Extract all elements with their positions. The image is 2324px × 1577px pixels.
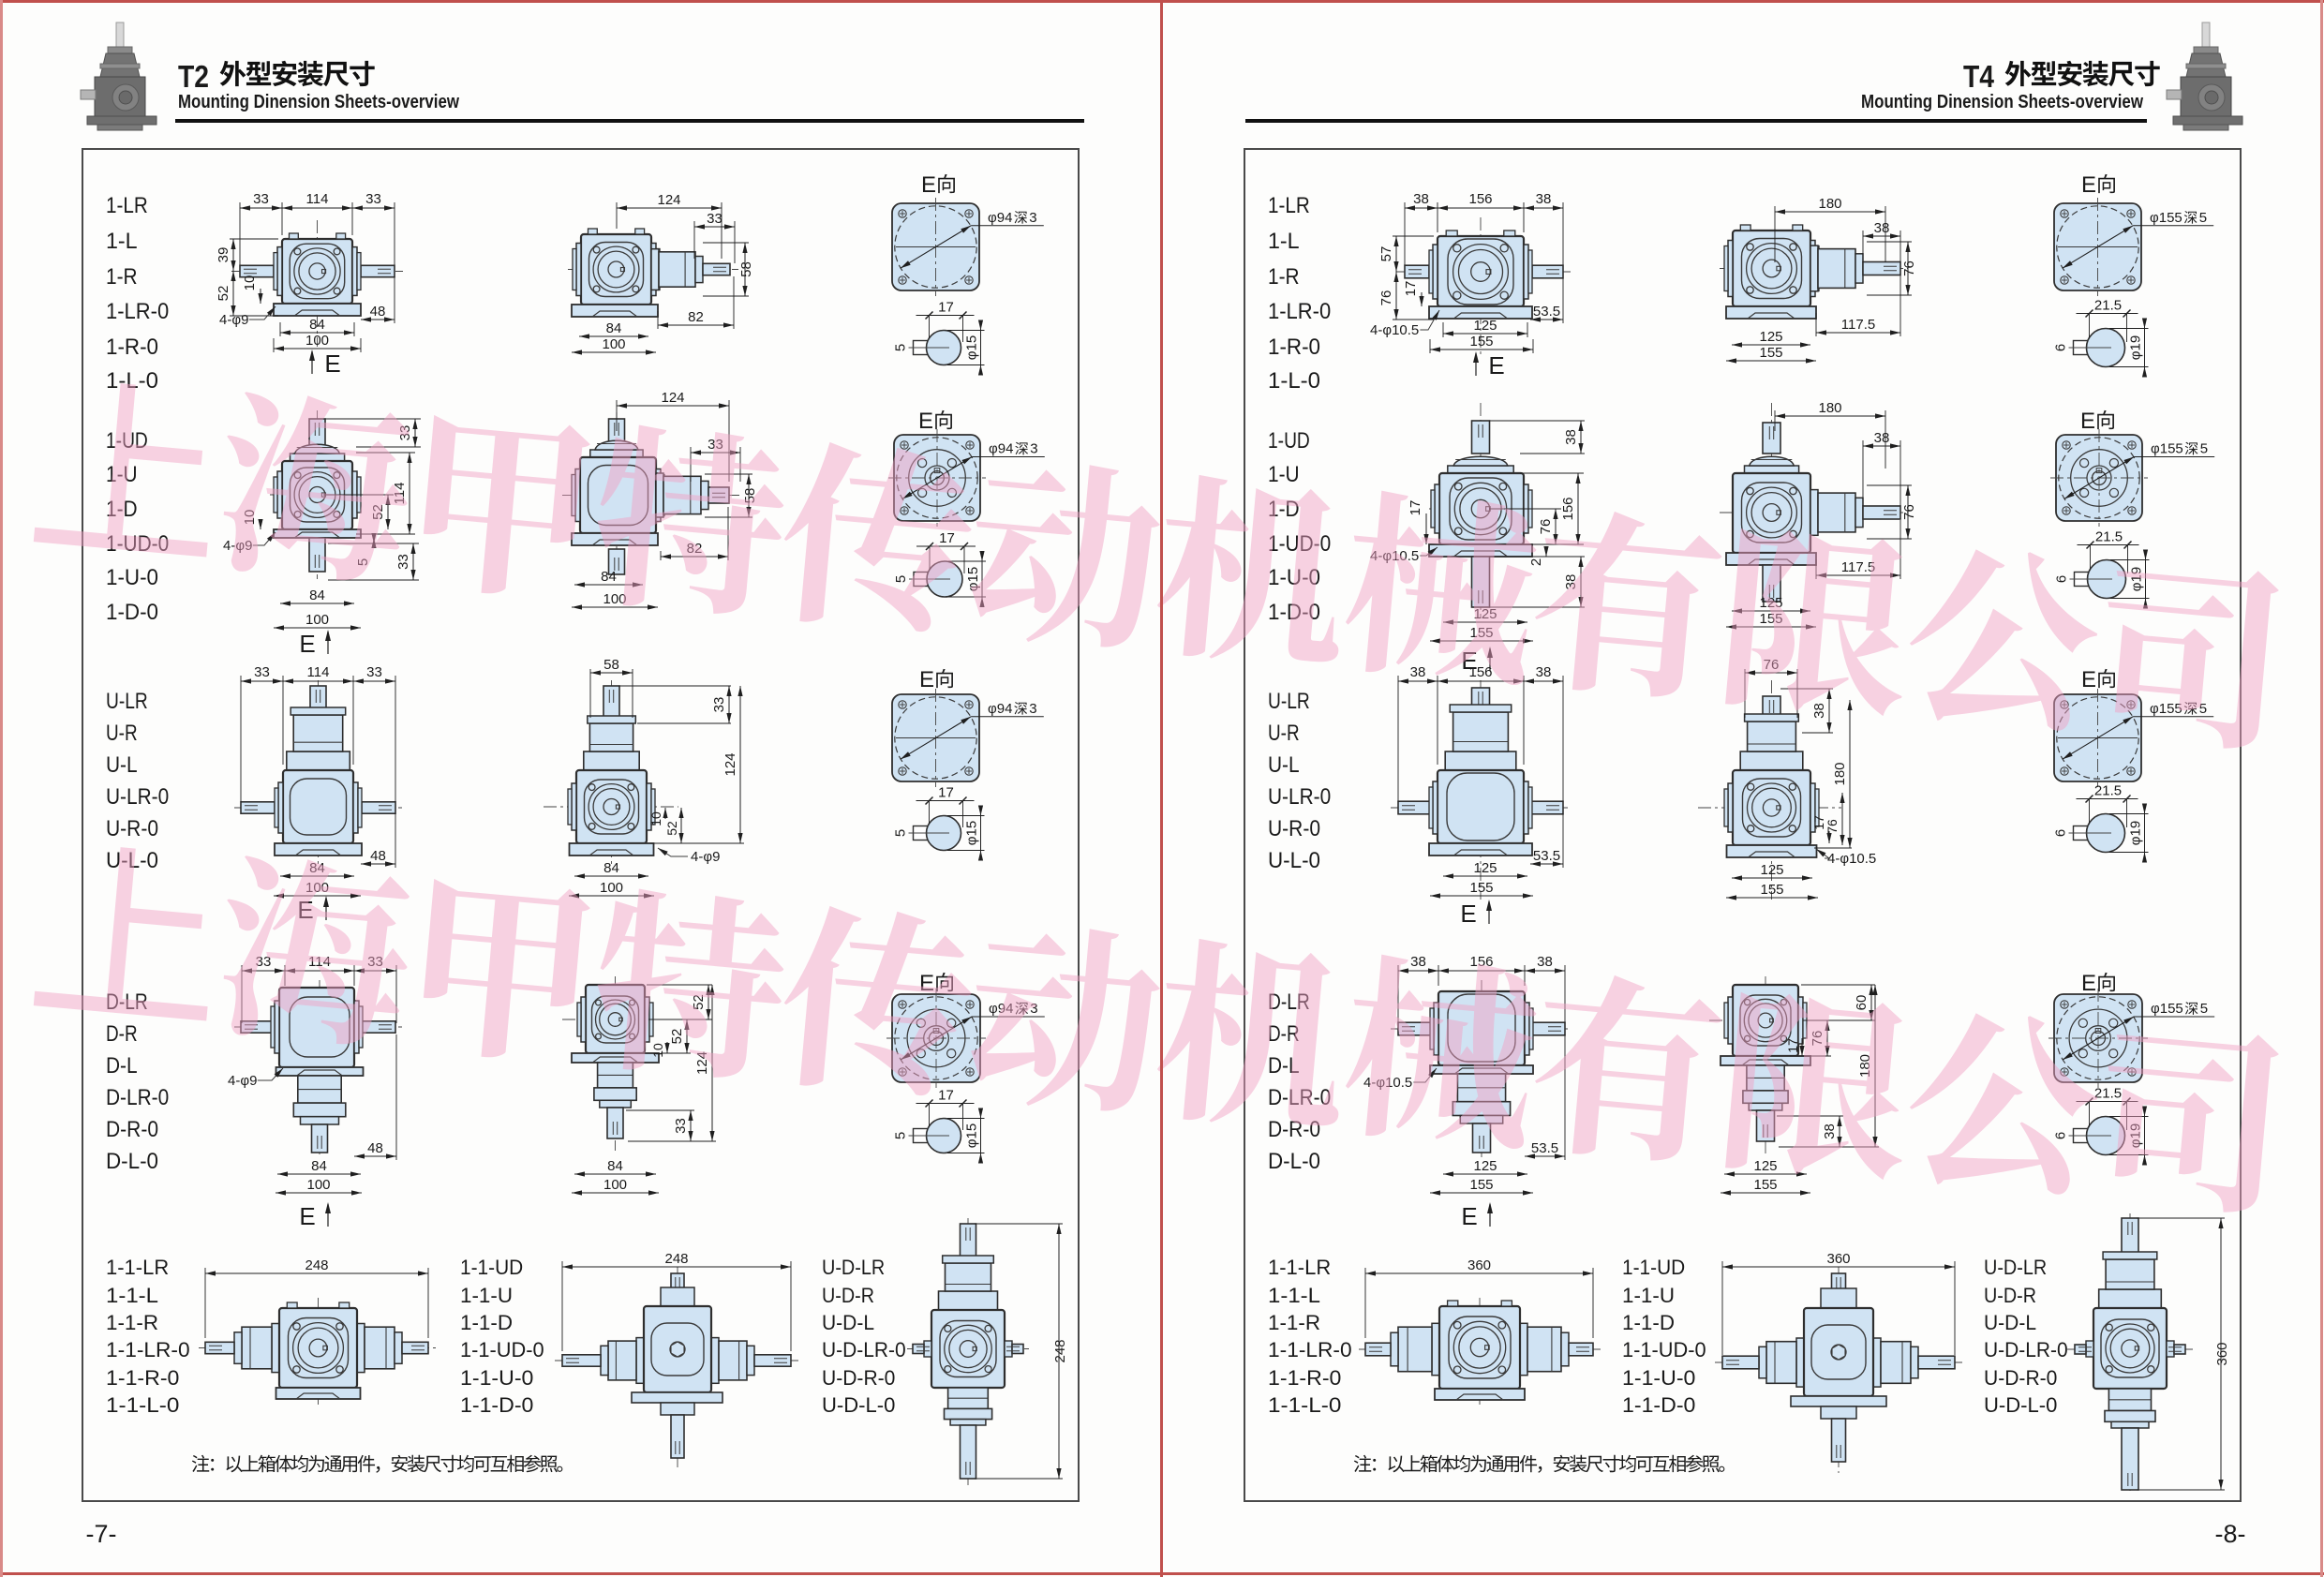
svg-text:E: E xyxy=(324,350,340,378)
svg-text:48: 48 xyxy=(367,1140,383,1156)
svg-text:100: 100 xyxy=(306,1177,330,1193)
svg-text:3: 3 xyxy=(1030,441,1037,457)
svg-text:4-φ9: 4-φ9 xyxy=(691,849,720,865)
svg-text:17: 17 xyxy=(938,300,954,316)
svg-text:248: 248 xyxy=(1052,1339,1068,1362)
svg-text:5: 5 xyxy=(2199,210,2207,226)
svg-text:1-1-D: 1-1-D xyxy=(460,1311,513,1334)
svg-text:-7-: -7- xyxy=(86,1520,117,1548)
svg-text:33: 33 xyxy=(707,211,723,227)
svg-text:38: 38 xyxy=(1537,954,1553,970)
svg-text:E: E xyxy=(2081,971,2096,996)
svg-text:D-L-0: D-L-0 xyxy=(1268,1149,1320,1174)
svg-text:33: 33 xyxy=(673,1118,689,1134)
svg-text:125: 125 xyxy=(1473,860,1497,876)
svg-text:156: 156 xyxy=(1468,664,1492,680)
svg-text:E: E xyxy=(918,409,933,434)
svg-text:82: 82 xyxy=(688,309,704,325)
svg-text:φ155: φ155 xyxy=(2151,441,2183,457)
svg-text:E: E xyxy=(1461,1202,1477,1230)
svg-text:21.5: 21.5 xyxy=(2094,298,2122,314)
svg-text:84: 84 xyxy=(601,569,617,585)
svg-text:52: 52 xyxy=(669,1029,685,1045)
svg-text:124: 124 xyxy=(661,390,684,406)
svg-text:φ15: φ15 xyxy=(964,821,980,845)
svg-text:155: 155 xyxy=(1469,1177,1493,1193)
svg-text:D-L: D-L xyxy=(106,1053,138,1079)
svg-text:17: 17 xyxy=(1403,281,1419,297)
svg-text:U-D-LR: U-D-LR xyxy=(1984,1256,2047,1279)
svg-text:1-L: 1-L xyxy=(1268,229,1300,254)
svg-text:360: 360 xyxy=(2214,1342,2230,1365)
svg-text:U-L-0: U-L-0 xyxy=(1268,848,1320,873)
svg-text:114: 114 xyxy=(306,191,329,207)
svg-text:5: 5 xyxy=(2200,1001,2208,1017)
svg-text:76: 76 xyxy=(1538,519,1554,535)
svg-text:58: 58 xyxy=(603,657,619,673)
svg-text:33: 33 xyxy=(253,191,269,207)
svg-text:38: 38 xyxy=(1410,664,1426,680)
svg-text:U-LR-0: U-LR-0 xyxy=(1268,784,1331,810)
svg-text:E: E xyxy=(299,1202,315,1230)
svg-text:1-R: 1-R xyxy=(106,264,138,290)
svg-text:φ155: φ155 xyxy=(2150,701,2182,717)
svg-text:248: 248 xyxy=(305,1257,328,1273)
svg-text:52: 52 xyxy=(216,286,231,302)
svg-text:5: 5 xyxy=(893,344,909,351)
svg-text:155: 155 xyxy=(1753,1177,1777,1193)
svg-text:1-L: 1-L xyxy=(106,229,138,254)
svg-text:17: 17 xyxy=(938,785,954,801)
svg-text:U-D-R: U-D-R xyxy=(1984,1284,2036,1307)
svg-text:1-1-D-0: 1-1-D-0 xyxy=(1622,1393,1695,1417)
svg-text:1-1-L: 1-1-L xyxy=(1268,1284,1320,1307)
svg-text:1-1-UD: 1-1-UD xyxy=(1622,1256,1685,1279)
svg-text:E: E xyxy=(921,172,936,198)
svg-text:156: 156 xyxy=(1560,497,1576,520)
svg-text:180: 180 xyxy=(1818,400,1841,416)
svg-text:4-φ10.5: 4-φ10.5 xyxy=(1370,322,1419,338)
svg-text:1-1-L-0: 1-1-L-0 xyxy=(106,1393,179,1417)
svg-text:U-D-R-0: U-D-R-0 xyxy=(1984,1366,2057,1390)
svg-text:155: 155 xyxy=(1759,345,1782,361)
svg-text:125: 125 xyxy=(1759,329,1782,345)
svg-text:10: 10 xyxy=(242,275,258,291)
svg-text:1-U: 1-U xyxy=(1268,462,1300,487)
svg-text:1-1-U-0: 1-1-U-0 xyxy=(460,1366,533,1390)
svg-text:1-1-R: 1-1-R xyxy=(106,1311,158,1334)
svg-text:1-U-0: 1-U-0 xyxy=(106,565,158,590)
svg-text:53.5: 53.5 xyxy=(1533,304,1560,320)
svg-text:1-LR: 1-LR xyxy=(1268,193,1310,218)
svg-text:60: 60 xyxy=(1854,995,1870,1011)
svg-text:1-1-U: 1-1-U xyxy=(460,1284,513,1307)
svg-text:17: 17 xyxy=(939,530,955,546)
svg-text:5: 5 xyxy=(2200,441,2208,457)
svg-text:U-D-R: U-D-R xyxy=(822,1284,874,1307)
svg-text:D-R-0: D-R-0 xyxy=(106,1117,158,1142)
svg-text:E: E xyxy=(1488,351,1504,379)
svg-text:48: 48 xyxy=(370,848,386,864)
svg-text:1-1-R: 1-1-R xyxy=(1268,1311,1320,1334)
svg-text:φ19: φ19 xyxy=(2128,335,2144,360)
svg-text:180: 180 xyxy=(1832,762,1848,785)
svg-text:155: 155 xyxy=(1469,880,1493,896)
svg-text:U-D-LR: U-D-LR xyxy=(822,1256,885,1279)
svg-text:1-1-L-0: 1-1-L-0 xyxy=(1268,1393,1341,1417)
svg-text:21.5: 21.5 xyxy=(2095,529,2123,545)
svg-text:5: 5 xyxy=(893,575,909,583)
svg-text:1-1-LR: 1-1-LR xyxy=(1268,1256,1331,1279)
svg-text:117.5: 117.5 xyxy=(1841,317,1875,333)
svg-text:33: 33 xyxy=(366,664,382,680)
svg-text:U-D-L: U-D-L xyxy=(1984,1311,2036,1334)
svg-text:1-R: 1-R xyxy=(1268,264,1300,290)
svg-text:E: E xyxy=(2081,667,2096,692)
svg-text:248: 248 xyxy=(664,1251,688,1267)
svg-text:38: 38 xyxy=(1410,954,1426,970)
svg-text:D-R: D-R xyxy=(106,1021,138,1047)
svg-text:156: 156 xyxy=(1468,191,1492,207)
svg-text:58: 58 xyxy=(738,261,754,277)
svg-text:4-φ10.5: 4-φ10.5 xyxy=(1827,851,1876,867)
svg-text:38: 38 xyxy=(1874,220,1890,236)
svg-text:180: 180 xyxy=(1818,196,1841,212)
svg-text:-8-: -8- xyxy=(2215,1520,2246,1548)
svg-text:57: 57 xyxy=(1378,246,1394,262)
svg-text:21.5: 21.5 xyxy=(2094,783,2122,799)
svg-text:6: 6 xyxy=(2053,829,2069,837)
svg-text:10: 10 xyxy=(650,1043,665,1058)
svg-text:125: 125 xyxy=(1760,862,1783,878)
svg-text:100: 100 xyxy=(600,880,623,896)
svg-text:1-R-0: 1-R-0 xyxy=(1268,335,1320,360)
svg-text:E: E xyxy=(1460,900,1476,928)
svg-text:38: 38 xyxy=(1811,703,1827,719)
svg-text:125: 125 xyxy=(1473,318,1497,334)
svg-text:φ19: φ19 xyxy=(2129,567,2145,591)
svg-text:84: 84 xyxy=(607,1158,623,1174)
svg-text:1-1-D: 1-1-D xyxy=(1622,1311,1675,1334)
svg-text:1-1-U: 1-1-U xyxy=(1622,1284,1675,1307)
svg-text:100: 100 xyxy=(305,612,329,628)
svg-text:1-1-L: 1-1-L xyxy=(106,1284,158,1307)
svg-text:U-D-L-0: U-D-L-0 xyxy=(822,1393,895,1417)
svg-text:38: 38 xyxy=(1874,430,1890,446)
svg-text:52: 52 xyxy=(664,821,679,836)
svg-text:21.5: 21.5 xyxy=(2094,1086,2122,1102)
svg-text:76: 76 xyxy=(1378,290,1394,306)
svg-text:5: 5 xyxy=(893,1132,909,1139)
svg-text:U-D-LR-0: U-D-LR-0 xyxy=(822,1338,906,1361)
svg-text:1-L-0: 1-L-0 xyxy=(1268,368,1320,394)
svg-text:1-R-0: 1-R-0 xyxy=(106,335,158,360)
svg-text:Mounting Dinension Sheets-over: Mounting Dinension Sheets-overview xyxy=(178,92,459,112)
svg-text:φ94: φ94 xyxy=(988,701,1012,717)
svg-text:38: 38 xyxy=(1413,191,1429,207)
svg-text:1-1-U-0: 1-1-U-0 xyxy=(1622,1366,1695,1390)
svg-text:6: 6 xyxy=(2053,344,2069,351)
svg-text:φ155: φ155 xyxy=(2150,210,2182,226)
svg-text:1-1-UD: 1-1-UD xyxy=(460,1256,523,1279)
svg-text:E: E xyxy=(2080,409,2095,434)
svg-text:155: 155 xyxy=(1760,882,1783,898)
svg-text:76: 76 xyxy=(1901,260,1917,276)
svg-text:U-R: U-R xyxy=(1268,721,1300,746)
svg-text:φ94: φ94 xyxy=(989,441,1013,457)
svg-text:17: 17 xyxy=(1408,500,1423,516)
svg-text:2: 2 xyxy=(1528,558,1544,566)
svg-text:38: 38 xyxy=(1822,1123,1838,1139)
svg-text:53.5: 53.5 xyxy=(1533,848,1560,864)
svg-text:1-1-LR-0: 1-1-LR-0 xyxy=(1268,1338,1352,1361)
svg-text:33: 33 xyxy=(254,664,270,680)
svg-text:3: 3 xyxy=(1029,701,1036,717)
svg-text:33: 33 xyxy=(395,554,411,570)
svg-text:33: 33 xyxy=(365,191,381,207)
svg-text:1-1-R-0: 1-1-R-0 xyxy=(106,1366,179,1390)
svg-text:39: 39 xyxy=(216,247,231,263)
svg-text:17: 17 xyxy=(938,1088,954,1104)
svg-text:100: 100 xyxy=(305,333,329,349)
svg-text:17: 17 xyxy=(1785,1038,1800,1053)
svg-text:76: 76 xyxy=(1825,819,1840,834)
svg-text:360: 360 xyxy=(1826,1251,1850,1267)
svg-text:1-LR: 1-LR xyxy=(106,193,148,218)
svg-text:33: 33 xyxy=(711,697,727,713)
svg-text:84: 84 xyxy=(603,860,619,876)
svg-text:1-1-D-0: 1-1-D-0 xyxy=(460,1393,533,1417)
svg-text:5: 5 xyxy=(893,829,909,837)
svg-text:φ15: φ15 xyxy=(964,335,980,360)
svg-text:E: E xyxy=(2081,172,2096,198)
svg-text:φ94: φ94 xyxy=(988,210,1012,226)
svg-text:φ15: φ15 xyxy=(964,1123,980,1148)
svg-text:38: 38 xyxy=(1536,664,1552,680)
svg-text:φ155: φ155 xyxy=(2151,1001,2183,1017)
svg-text:1-1-LR-0: 1-1-LR-0 xyxy=(106,1338,190,1361)
svg-text:1-1-UD-0: 1-1-UD-0 xyxy=(1622,1338,1706,1361)
svg-text:U-LR-0: U-LR-0 xyxy=(106,784,169,810)
svg-text:U-L: U-L xyxy=(106,752,138,778)
svg-text:E: E xyxy=(919,667,934,692)
svg-text:1-1-UD-0: 1-1-UD-0 xyxy=(460,1338,544,1361)
svg-text:D-L-0: D-L-0 xyxy=(106,1149,158,1174)
svg-text:1-1-R-0: 1-1-R-0 xyxy=(1268,1366,1341,1390)
svg-text:6: 6 xyxy=(2054,575,2070,583)
svg-text:D-LR-0: D-LR-0 xyxy=(106,1085,169,1110)
svg-text:Mounting Dinension Sheets-over: Mounting Dinension Sheets-overview xyxy=(1861,92,2143,112)
svg-text:U-D-L: U-D-L xyxy=(822,1311,874,1334)
svg-text:100: 100 xyxy=(602,336,625,352)
svg-text:117.5: 117.5 xyxy=(1841,559,1875,575)
svg-text:U-R: U-R xyxy=(106,721,138,746)
svg-text:155: 155 xyxy=(1469,334,1493,350)
svg-text:4-φ9: 4-φ9 xyxy=(228,1073,257,1089)
svg-text:U-R-0: U-R-0 xyxy=(1268,816,1320,841)
svg-text:38: 38 xyxy=(1536,191,1552,207)
svg-text:1-1-LR: 1-1-LR xyxy=(106,1256,169,1279)
svg-text:84: 84 xyxy=(606,320,622,336)
svg-text:U-L: U-L xyxy=(1268,752,1300,778)
svg-text:124: 124 xyxy=(657,192,680,208)
svg-text:125: 125 xyxy=(1473,1158,1497,1174)
svg-text:76: 76 xyxy=(1901,504,1917,520)
svg-text:1-LR-0: 1-LR-0 xyxy=(106,299,169,324)
svg-text:U-LR: U-LR xyxy=(106,689,148,714)
svg-text:114: 114 xyxy=(307,664,330,680)
svg-text:1-D-0: 1-D-0 xyxy=(106,600,158,625)
svg-text:U-D-L-0: U-D-L-0 xyxy=(1984,1393,2057,1417)
svg-text:U-D-R-0: U-D-R-0 xyxy=(822,1366,895,1390)
svg-text:6: 6 xyxy=(2053,1132,2069,1139)
svg-text:U-LR: U-LR xyxy=(1268,689,1310,714)
svg-text:1-UD: 1-UD xyxy=(1268,428,1310,454)
svg-text:124: 124 xyxy=(723,752,738,776)
svg-text:38: 38 xyxy=(1563,429,1579,445)
svg-text:84: 84 xyxy=(309,317,325,333)
svg-text:φ19: φ19 xyxy=(2128,821,2144,845)
svg-text:T2: T2 xyxy=(178,59,209,94)
svg-text:U-R-0: U-R-0 xyxy=(106,816,158,841)
svg-text:U-D-LR-0: U-D-LR-0 xyxy=(1984,1338,2068,1361)
svg-text:T4: T4 xyxy=(1963,59,1995,94)
svg-text:3: 3 xyxy=(1029,210,1036,226)
svg-text:100: 100 xyxy=(603,1177,627,1193)
svg-text:10: 10 xyxy=(648,811,663,826)
svg-text:53.5: 53.5 xyxy=(1531,1140,1558,1156)
svg-text:84: 84 xyxy=(309,588,325,603)
svg-text:1-LR-0: 1-LR-0 xyxy=(1268,299,1331,324)
svg-text:4-φ9: 4-φ9 xyxy=(219,312,248,328)
svg-text:125: 125 xyxy=(1753,1158,1777,1174)
svg-text:E: E xyxy=(299,630,315,658)
svg-text:48: 48 xyxy=(370,304,386,320)
svg-text:360: 360 xyxy=(1467,1257,1491,1273)
svg-text:84: 84 xyxy=(311,1158,327,1174)
